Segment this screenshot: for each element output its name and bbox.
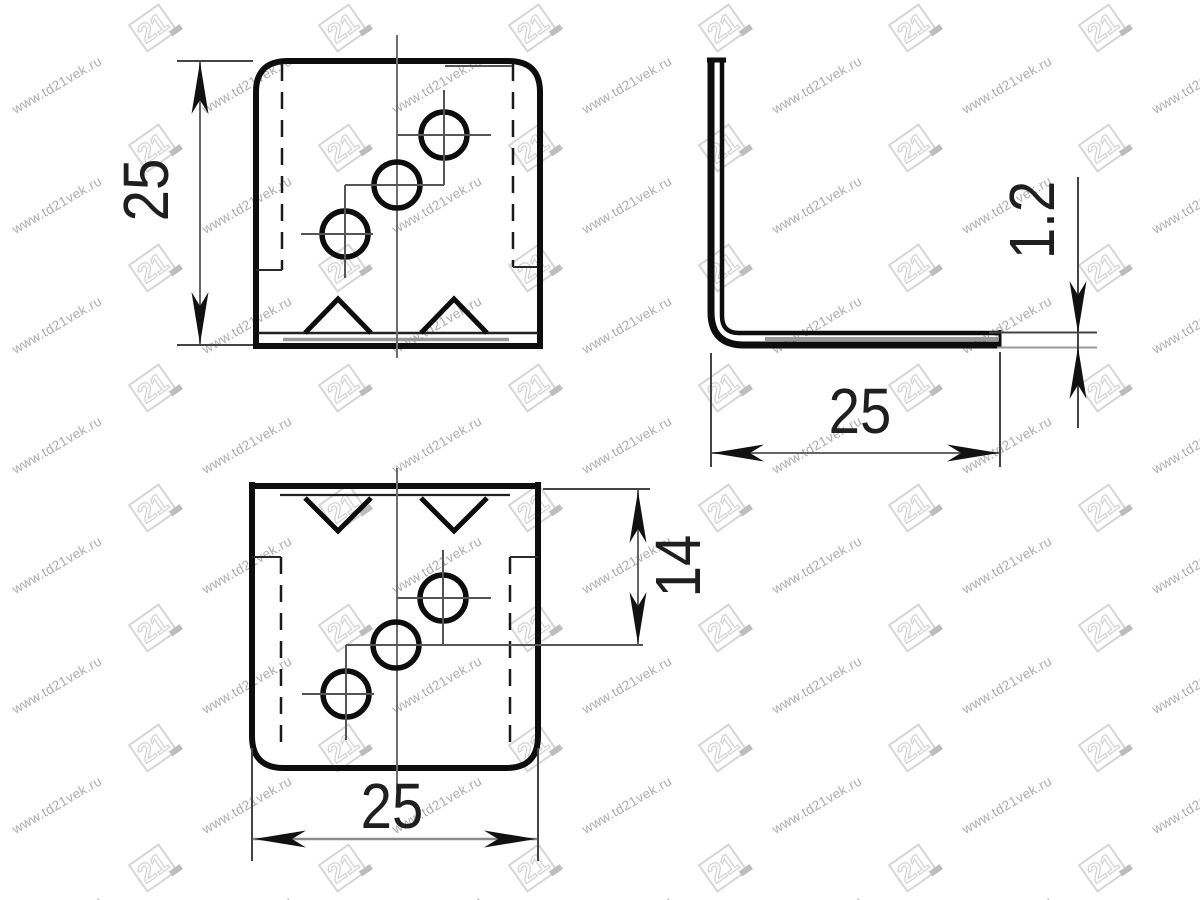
front-tooth-right <box>421 299 487 333</box>
dim-label-thickness: 1.2 <box>995 181 1069 259</box>
dim-label-plan-width: 25 <box>361 769 424 843</box>
plan-outline <box>252 482 538 768</box>
dim-label-front-height: 25 <box>109 159 183 222</box>
dim-label-hole-offset: 14 <box>641 535 715 598</box>
side-outer-surface <box>711 60 1000 345</box>
plan-hole-crosshairs <box>302 550 643 740</box>
side-inner-surface <box>722 60 1000 333</box>
plan-tooth-right <box>421 498 487 531</box>
front-height-dimension <box>177 61 253 345</box>
plan-view <box>249 468 650 861</box>
front-view <box>177 35 543 358</box>
bracket-technical-drawing <box>0 0 1200 900</box>
plan-tooth-left <box>305 498 371 531</box>
dim-label-side-depth: 25 <box>829 374 892 448</box>
drawing-canvas: www.td21vek.ruwww.td21vek.ruwww.td21vek.… <box>0 0 1200 900</box>
plan-hole-offset-dimension <box>543 489 650 644</box>
front-tooth-left <box>305 299 371 333</box>
side-view <box>707 60 1097 467</box>
